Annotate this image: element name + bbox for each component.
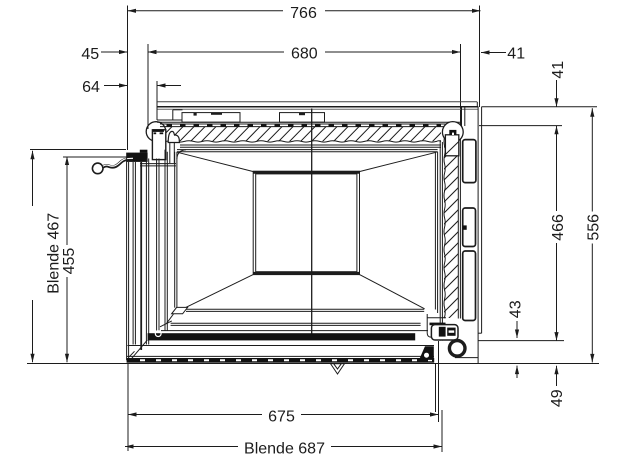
svg-text:43: 43	[508, 300, 525, 318]
svg-text:455: 455	[61, 248, 78, 275]
svg-text:466: 466	[550, 214, 567, 241]
svg-text:49: 49	[549, 389, 566, 407]
svg-text:41: 41	[550, 61, 567, 79]
svg-text:Blende 687: Blende 687	[244, 440, 325, 457]
svg-text:556: 556	[586, 214, 603, 241]
svg-text:675: 675	[268, 408, 295, 425]
svg-text:766: 766	[290, 5, 317, 22]
svg-text:64: 64	[82, 79, 100, 96]
svg-text:45: 45	[81, 46, 99, 63]
svg-text:680: 680	[291, 46, 318, 63]
svg-text:41: 41	[507, 46, 525, 63]
